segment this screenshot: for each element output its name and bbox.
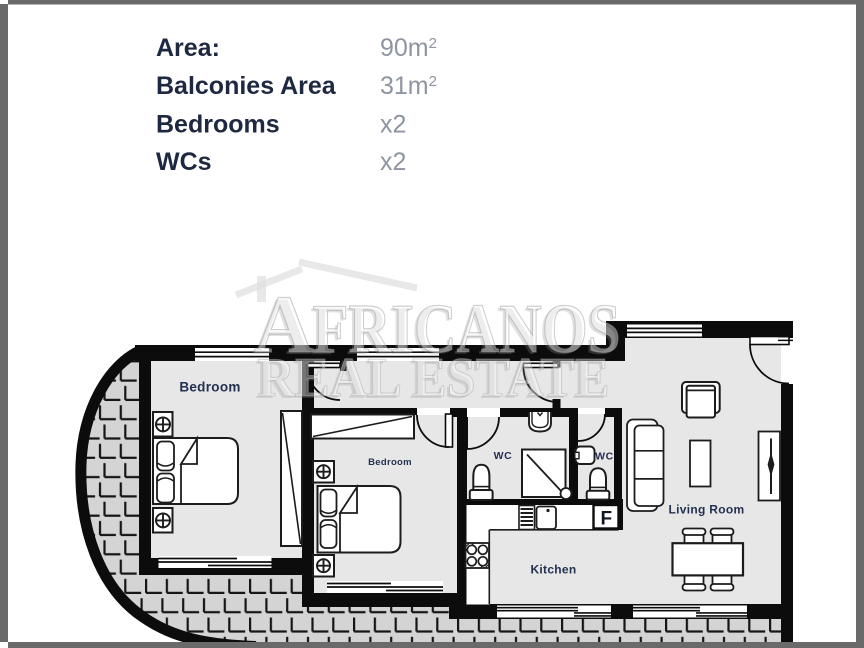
- svg-text:x2: x2: [380, 111, 406, 139]
- svg-text:WC: WC: [595, 451, 614, 463]
- svg-text:Bedrooms: Bedrooms: [156, 111, 280, 139]
- svg-text:Area:: Area:: [156, 34, 220, 62]
- svg-text:31m2: 31m2: [380, 72, 437, 100]
- svg-text:Living Room: Living Room: [669, 503, 745, 517]
- svg-text:F: F: [601, 509, 613, 530]
- svg-text:Bedroom: Bedroom: [368, 457, 412, 468]
- svg-text:REAL ESTATE: REAL ESTATE: [258, 347, 610, 409]
- svg-text:Kitchen: Kitchen: [530, 563, 576, 577]
- svg-text:Bedroom: Bedroom: [179, 380, 240, 395]
- svg-text:90m2: 90m2: [380, 34, 437, 62]
- svg-text:x2: x2: [380, 148, 406, 176]
- svg-text:Balconies Area: Balconies Area: [156, 72, 337, 100]
- svg-text:WC: WC: [494, 450, 513, 462]
- svg-text:WCs: WCs: [156, 148, 212, 176]
